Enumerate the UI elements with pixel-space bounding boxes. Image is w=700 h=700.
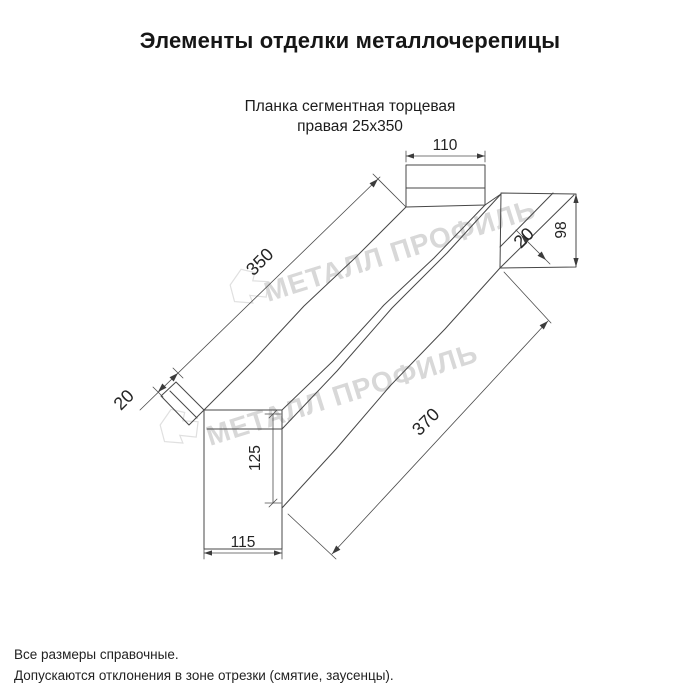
footnotes: Все размеры справочные. Допускаются откл…	[14, 645, 394, 686]
technical-drawing: МЕТАЛЛ ПРОФИЛЬ МЕТАЛЛ ПРОФИЛЬ 110	[0, 0, 700, 700]
watermark-upper: МЕТАЛЛ ПРОФИЛЬ	[228, 193, 539, 308]
dim-label-98: 98	[553, 221, 570, 238]
far-end-top-flange	[406, 165, 485, 207]
dimension-near-end-width: 115	[204, 512, 282, 559]
watermark-text: МЕТАЛЛ ПРОФИЛЬ	[202, 337, 481, 452]
footnote-2: Допускаются отклонения в зоне отрезки (с…	[14, 666, 394, 687]
dimension-right-end-height: 98	[553, 194, 579, 267]
dim-label-370: 370	[408, 404, 443, 439]
dim-label-115: 115	[231, 534, 256, 551]
footnote-1: Все размеры справочные.	[14, 645, 394, 666]
dim-label-110: 110	[433, 137, 458, 154]
metal-profil-logo-icon	[158, 406, 201, 446]
dim-label-125: 125	[247, 445, 264, 471]
dim-label-20-left: 20	[110, 386, 138, 414]
dimension-top-flange-width: 110	[406, 137, 485, 162]
dimension-side-face-length: 370	[288, 272, 551, 559]
watermark-lower: МЕТАЛЛ ПРОФИЛЬ	[158, 337, 481, 452]
